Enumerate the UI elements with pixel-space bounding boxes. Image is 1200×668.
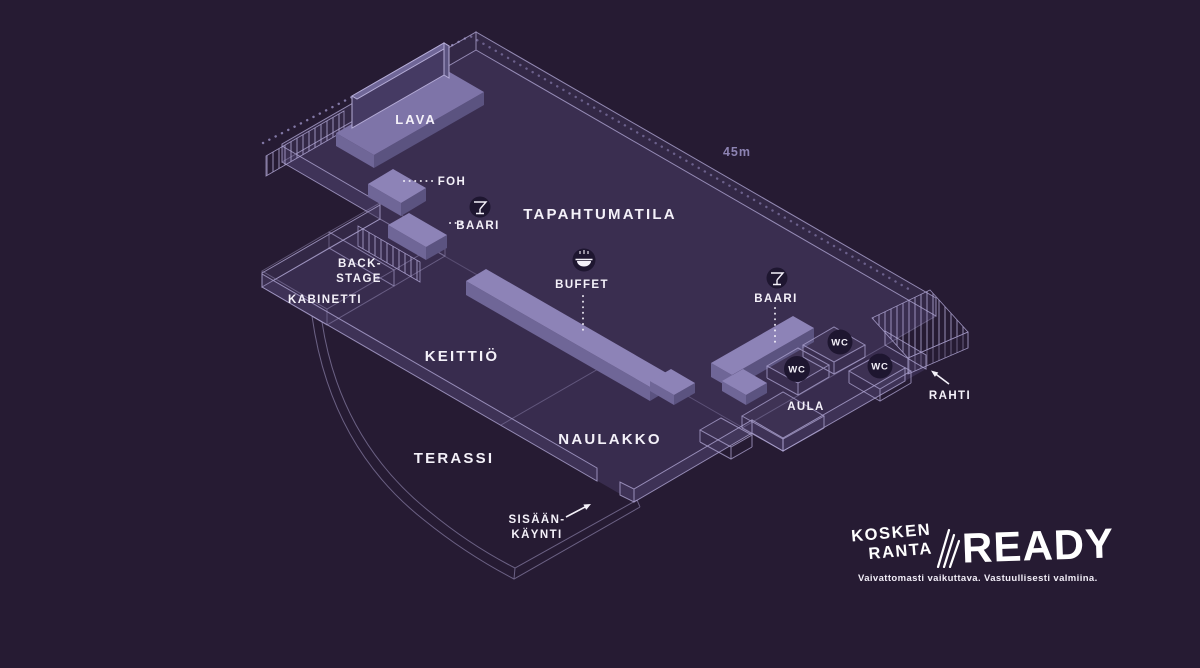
label-dimension-45m: 45m: [723, 145, 751, 159]
label-main-bar: BAARI: [754, 293, 797, 305]
wc-badge-label: WC: [831, 338, 848, 349]
label-kitchen: KEITTIÖ: [425, 348, 500, 365]
entrance-arrow: [566, 504, 591, 517]
reeds-icon: [934, 526, 960, 568]
label-terrace: TERASSI: [414, 450, 494, 467]
label-stage-bar: BAARI: [456, 220, 499, 232]
label-backstage-line2: STAGE: [336, 273, 382, 285]
main-bar-badge: [767, 268, 788, 289]
stage-bar-badge: [470, 197, 491, 218]
wc-badge-left: WC: [784, 356, 810, 382]
wc-badge-label: WC: [871, 362, 888, 373]
label-cabinet: KABINETTI: [288, 294, 362, 306]
label-entrance-line2: KÄYNTI: [511, 528, 562, 541]
label-cloakroom: NAULAKKO: [558, 431, 661, 448]
label-lobby: AULA: [787, 401, 825, 413]
label-entrance-line1: SISÄÄN-: [508, 513, 565, 526]
koskenranta-ready-logo: KOSKEN RANTA READY Vaivattomasti vaikutt…: [852, 524, 1182, 584]
label-buffet: BUFFET: [555, 279, 609, 291]
label-event-hall: TAPAHTUMATILA: [523, 206, 677, 223]
label-stage: LAVA: [395, 112, 436, 127]
logo-tagline: Vaivattomasti vaikuttava. Vastuullisesti…: [858, 573, 1182, 584]
wc-badge-right: WC: [868, 354, 893, 379]
wc-badge-top: WC: [828, 330, 853, 355]
ready-wordmark: READY: [962, 523, 1115, 568]
label-backstage-line1: BACK-: [338, 258, 382, 270]
label-foh: FOH: [438, 176, 466, 188]
wc-badge-label: WC: [788, 365, 805, 376]
buffet-badge: [573, 249, 596, 272]
label-freight: RAHTI: [929, 390, 971, 402]
freight-arrow: [931, 371, 949, 385]
logo-lockup: KOSKEN RANTA READY: [852, 524, 1182, 566]
koskenranta-wordmark: KOSKEN RANTA: [850, 521, 933, 566]
